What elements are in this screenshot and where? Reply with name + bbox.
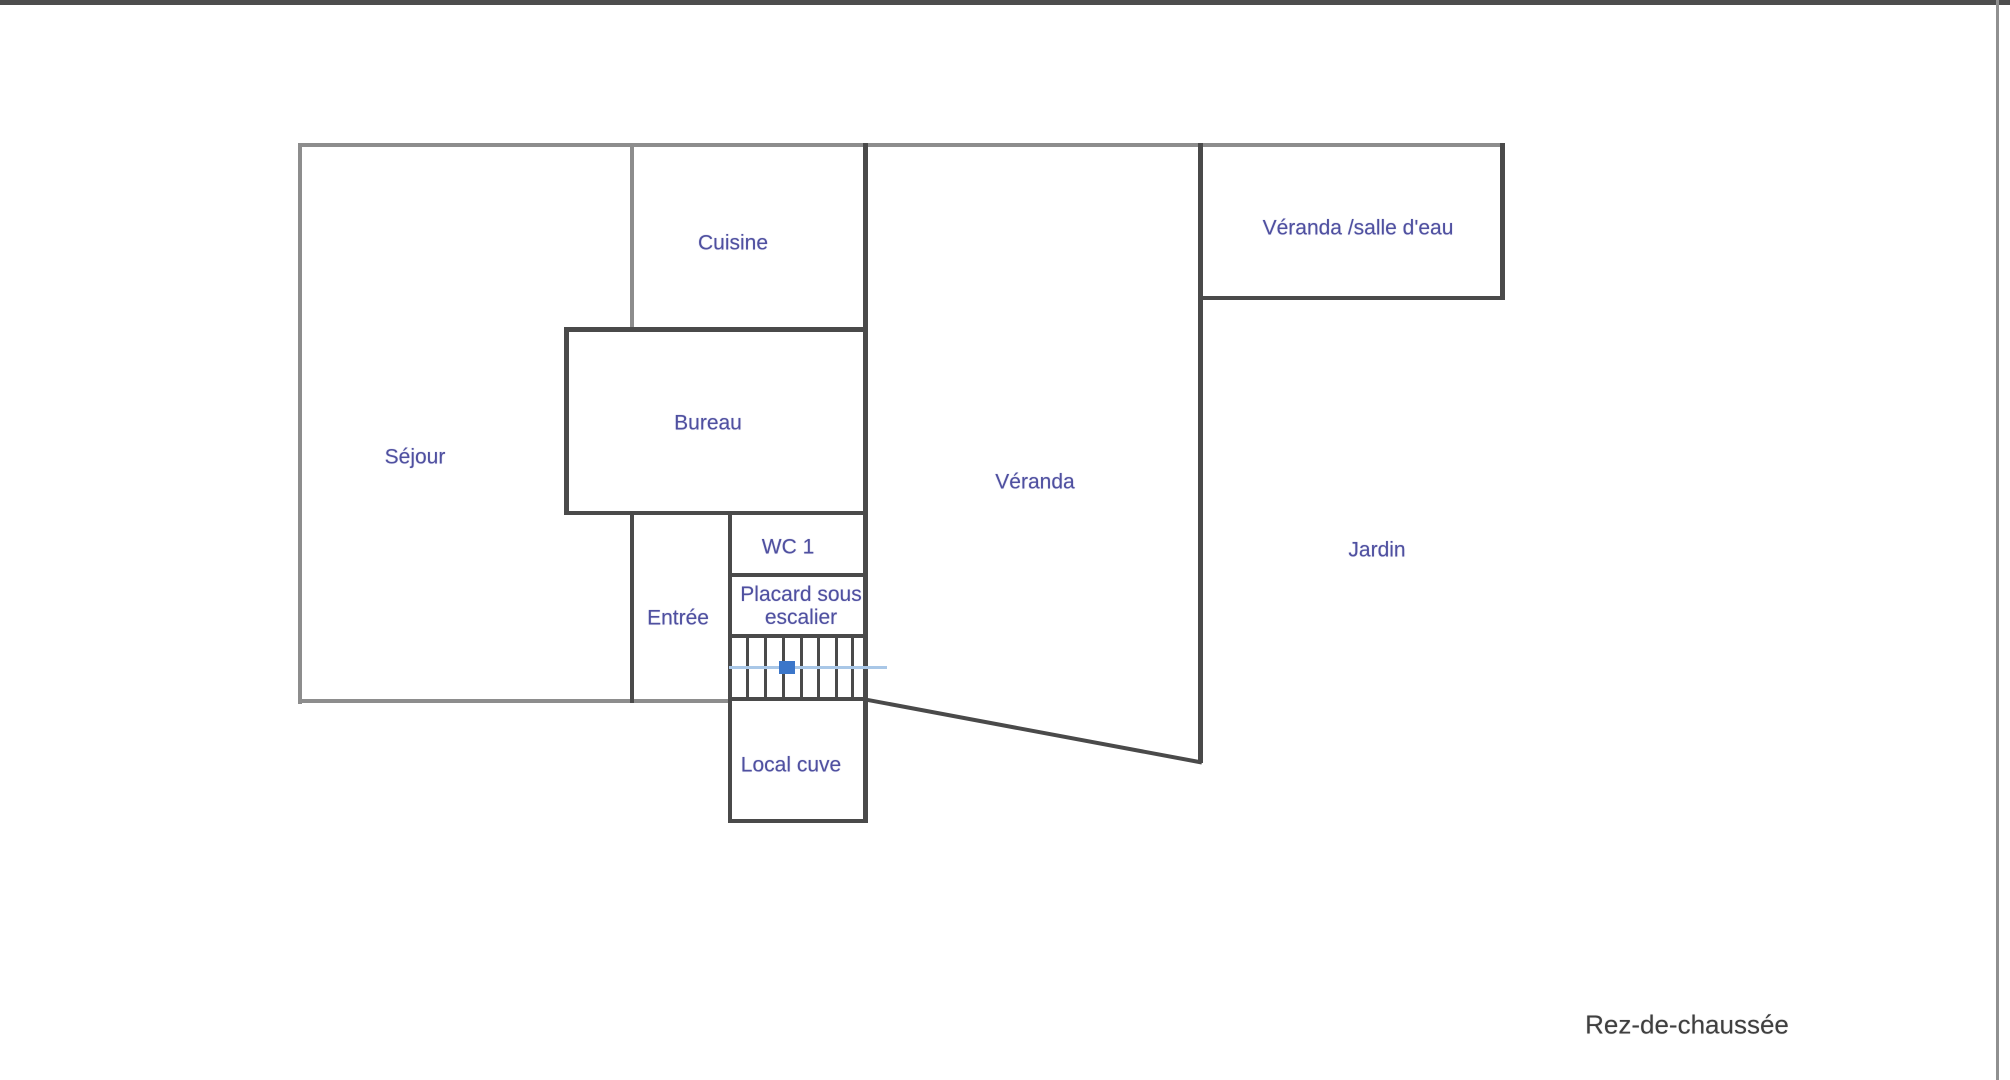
floor-plan-canvas: Rez-de-chaussée SéjourCuisineBureauWC 1E… <box>0 0 2010 1080</box>
room-label-sejour: Séjour <box>385 446 446 469</box>
wall-stairs-top <box>728 634 868 638</box>
wall-veranda-diagonal <box>867 698 1202 764</box>
wall-wc-bottom <box>728 573 868 577</box>
floor-level-caption: Rez-de-chaussée <box>1585 1010 1789 1041</box>
wall-bureau-left <box>564 327 569 515</box>
wall-stairs-bottom <box>728 697 868 701</box>
room-label-veranda: Véranda <box>995 471 1074 494</box>
room-label-veranda-salle-deau: Véranda /salle d'eau <box>1263 217 1454 240</box>
wall-local-cuve-bottom <box>728 819 868 823</box>
wall-outer-left <box>298 143 302 704</box>
room-label-local-cuve: Local cuve <box>741 754 841 777</box>
wall-salle-deau-right <box>1500 143 1505 300</box>
stair-direction-line <box>729 666 887 669</box>
wall-sejour-bottom <box>298 699 732 703</box>
wall-entree-left <box>630 511 634 703</box>
screenshot-root: Rez-de-chaussée SéjourCuisineBureauWC 1E… <box>0 0 2010 1080</box>
stair-marker <box>779 661 795 674</box>
room-label-wc-1: WC 1 <box>762 536 815 559</box>
room-label-placard: Placard sous escalier <box>735 583 867 629</box>
room-label-bureau: Bureau <box>674 412 742 435</box>
wall-east <box>863 143 868 823</box>
wall-veranda-right <box>1198 143 1203 763</box>
wall-cuisine-left <box>630 143 634 331</box>
room-label-cuisine: Cuisine <box>698 232 768 255</box>
wall-salle-deau-bottom <box>1198 296 1505 300</box>
room-label-jardin: Jardin <box>1348 539 1405 562</box>
wall-bureau-bottom <box>564 511 867 515</box>
wall-outer-top <box>298 143 1505 147</box>
wall-bureau-top <box>564 327 867 332</box>
room-label-entree: Entrée <box>647 607 709 630</box>
